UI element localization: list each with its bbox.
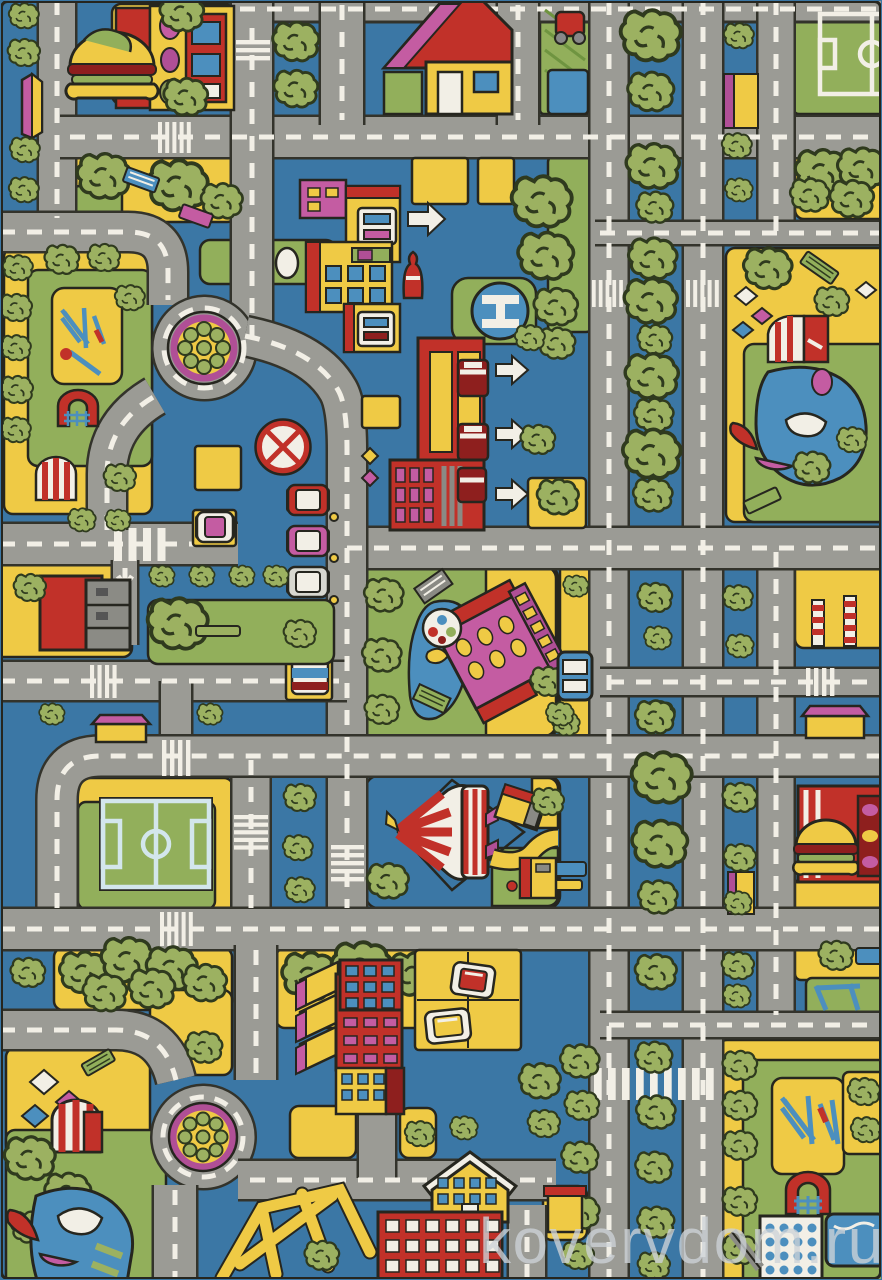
svg-text:kovervdom.ru: kovervdom.ru xyxy=(479,1205,882,1277)
